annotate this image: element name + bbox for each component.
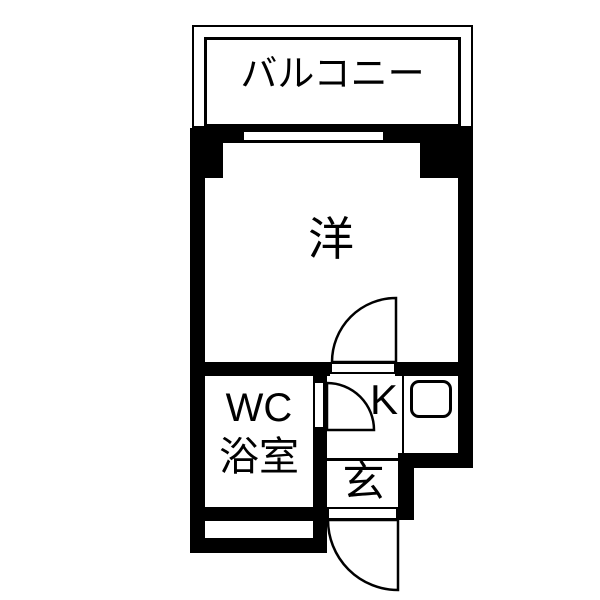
bath-label-line: 浴室 [205,433,313,482]
balcony-window [242,130,385,142]
western-kitchen-door-leaf [330,362,396,374]
wall-entry-right [398,453,414,520]
entrance-label: 玄 [327,461,400,503]
kitchen-label: K [368,379,400,421]
wc-lower-strip [205,521,313,538]
kitchen-counter-line [402,376,404,453]
wc-label-line: WC [205,384,313,433]
kitchen-sink [410,380,452,418]
wc-door-leaf [313,381,325,429]
balcony-label: バルコニー [204,55,461,92]
wc-bath-label: WC 浴室 [205,384,313,482]
western-room-label: 洋 [205,216,457,262]
entrance-door-leaf [327,507,398,520]
entrance-door-arc [328,520,398,590]
wall-mid-right [395,362,473,376]
floorplan-canvas: バルコニー 洋 WC 浴室 K 玄 [0,0,600,600]
wc-door-arc [327,383,374,430]
western-kitchen-door-arc [332,298,396,362]
wall-mid-left [190,362,330,376]
wall-outer-right [458,128,473,468]
wall-outer-left [190,128,205,553]
